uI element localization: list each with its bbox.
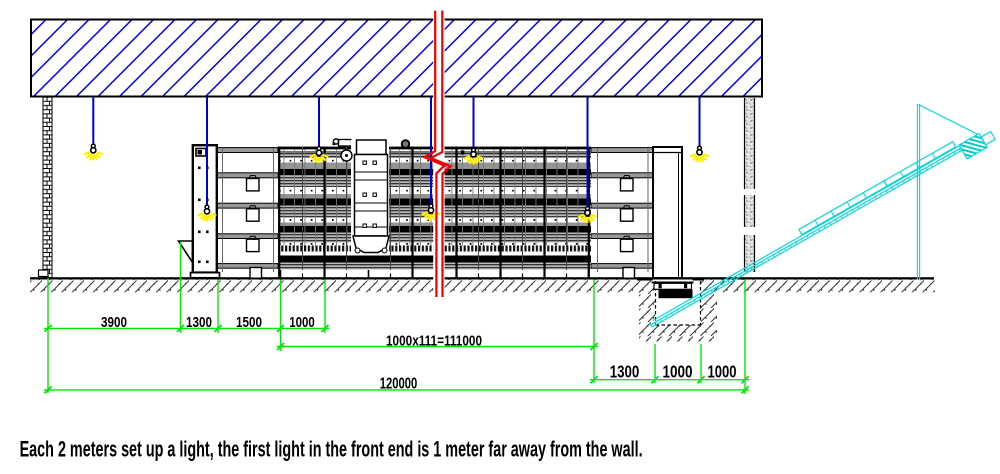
svg-text:1300: 1300 xyxy=(186,314,212,331)
svg-text:1000: 1000 xyxy=(289,314,315,331)
svg-text:1000x111=111000: 1000x111=111000 xyxy=(386,332,482,349)
svg-text:1000: 1000 xyxy=(663,362,693,382)
svg-text:1000: 1000 xyxy=(708,362,737,382)
svg-text:1500: 1500 xyxy=(236,314,262,331)
svg-text:1300: 1300 xyxy=(610,362,640,382)
svg-text:3900: 3900 xyxy=(101,314,127,331)
svg-text:Each 2 meters set up a light,: Each 2 meters set up a light, the first … xyxy=(20,436,643,461)
svg-text:120000: 120000 xyxy=(380,375,418,392)
